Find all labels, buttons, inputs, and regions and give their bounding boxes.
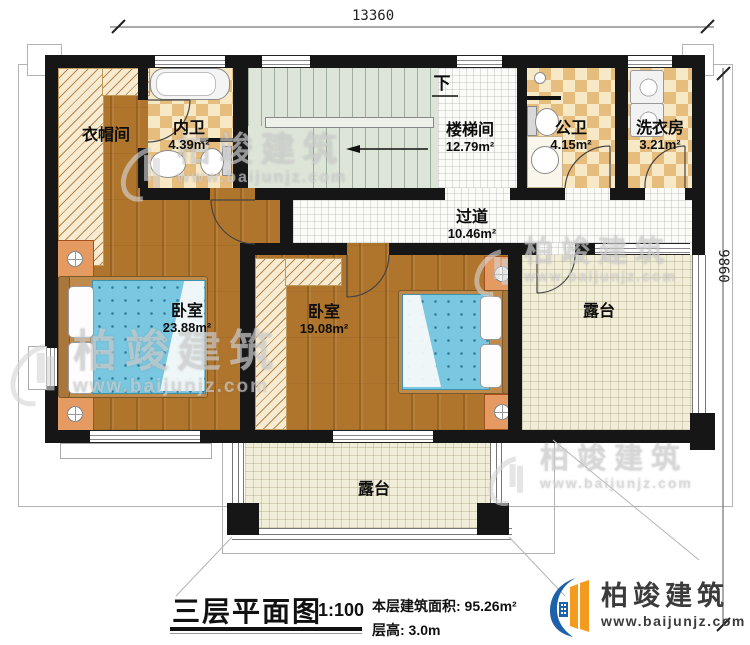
- room-label-laundry: 洗衣房3.21m²: [620, 120, 700, 153]
- railing-terrace-right: [692, 255, 706, 413]
- brand-logo: 柏竣建筑 www.baijunjz.com: [543, 574, 746, 640]
- dimension-width: 13360: [352, 8, 394, 24]
- railing-terrace-bottom: [232, 528, 512, 540]
- washing-machine: [630, 70, 664, 104]
- stairs-down-label: 下: [429, 74, 455, 94]
- room-label-cloakroom: 衣帽间: [66, 127, 146, 145]
- room-label-public-bath: 公卫4.15m²: [536, 120, 606, 153]
- shower-head: [534, 72, 546, 84]
- brand-logo-icon: [543, 574, 595, 640]
- watermark: 柏竣建筑 www.baijunjz.com: [492, 445, 693, 509]
- floor-plan: 13360 9860 柏竣建筑 www.baijunjz.com 柏竣建筑 ww…: [0, 0, 750, 645]
- room-label-terrace-bottom: 露台: [334, 481, 414, 499]
- wardrobe-bedroom-middle-top: [285, 258, 342, 286]
- room-label-bedroom-middle: 卧室19.08m²: [284, 304, 364, 337]
- room-label-stairwell: 楼梯间12.79m²: [425, 122, 515, 155]
- watermark: 柏竣建筑 www.baijunjz.com: [478, 238, 677, 300]
- brand-website: www.baijunjz.com: [601, 613, 746, 629]
- plan-scale: 1:100: [318, 600, 364, 621]
- nightstand: [56, 240, 94, 278]
- room-label-corridor: 过道10.46m²: [430, 209, 514, 242]
- window-sill: [60, 443, 212, 459]
- title-underline-thin: [170, 633, 362, 634]
- dimension-depth: 9860: [715, 245, 731, 287]
- wardrobe-cloakroom-left: [58, 68, 104, 266]
- window: [90, 430, 200, 443]
- stair-handrail: [265, 117, 434, 128]
- window: [457, 55, 502, 68]
- room-label-bedroom-left: 卧室23.88m²: [147, 303, 227, 336]
- sliding-door: [333, 430, 433, 443]
- brand-name: 柏竣建筑: [601, 574, 746, 613]
- window: [262, 55, 310, 68]
- room-label-terrace-right: 露台: [559, 303, 639, 321]
- watermark: 柏竣建筑 www.baijunjz.com: [15, 330, 281, 410]
- watermark-logo-icon: [0, 332, 82, 418]
- floor-height-text: 层高: 3.0m: [372, 620, 440, 640]
- plan-title: 三层平面图: [172, 590, 322, 630]
- title-underline: [170, 627, 362, 631]
- room-label-inner-bath: 内卫4.39m²: [154, 120, 224, 153]
- floor-area-text: 本层建筑面积: 95.26m²: [372, 596, 517, 616]
- window: [155, 55, 225, 68]
- window: [628, 55, 672, 68]
